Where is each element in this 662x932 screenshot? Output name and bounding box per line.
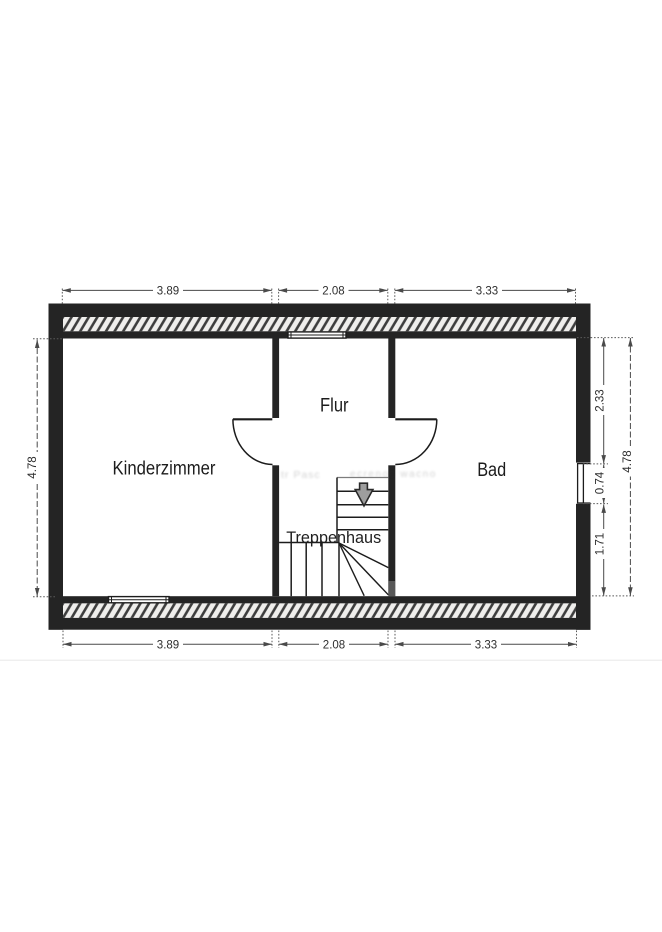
svg-text:2.33: 2.33 [595,389,607,411]
svg-text:3.33: 3.33 [476,285,498,297]
svg-text:ecrenos wacno: ecrenos wacno [350,469,437,480]
svg-text:3.33: 3.33 [475,639,497,651]
svg-text:3.89: 3.89 [157,285,179,297]
svg-text:2.08: 2.08 [322,285,344,297]
svg-text:Flur: Flur [320,396,349,417]
svg-text:Bad: Bad [477,460,506,481]
svg-text:2.08: 2.08 [323,639,345,651]
svg-text:3.89: 3.89 [157,639,179,651]
svg-text:4.78: 4.78 [27,456,39,478]
svg-text:Kinderzimmer: Kinderzimmer [113,459,217,480]
svg-text:tr Pasc: tr Pasc [281,469,321,481]
svg-text:1.71: 1.71 [595,533,607,555]
svg-text:4.78: 4.78 [622,450,634,472]
svg-text:Treppenhaus: Treppenhaus [286,529,381,547]
svg-text:0.74: 0.74 [595,471,607,494]
